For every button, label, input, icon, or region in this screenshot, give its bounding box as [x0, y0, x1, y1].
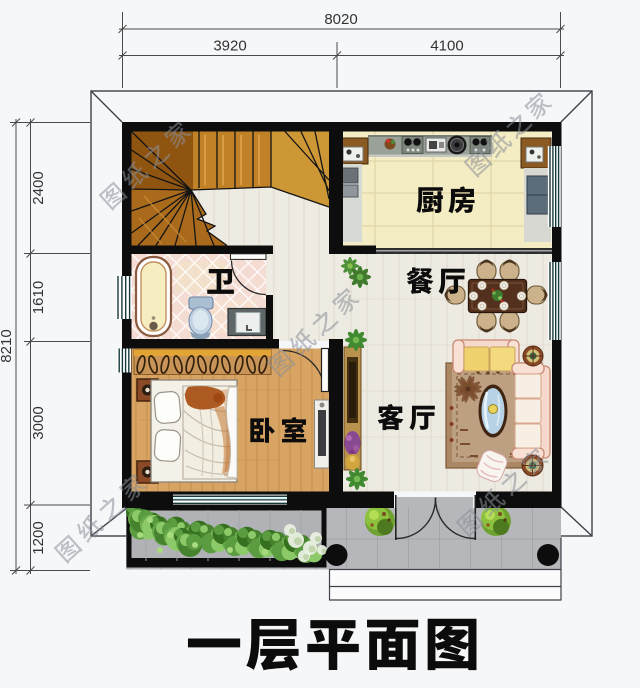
- svg-text:3920: 3920: [213, 38, 246, 55]
- svg-text:1610: 1610: [30, 281, 47, 314]
- svg-text:4100: 4100: [430, 38, 463, 55]
- svg-text:3000: 3000: [30, 406, 47, 439]
- svg-text:1200: 1200: [30, 521, 47, 554]
- svg-text:2400: 2400: [30, 171, 47, 204]
- svg-text:8210: 8210: [0, 329, 15, 362]
- svg-text:8020: 8020: [324, 11, 357, 28]
